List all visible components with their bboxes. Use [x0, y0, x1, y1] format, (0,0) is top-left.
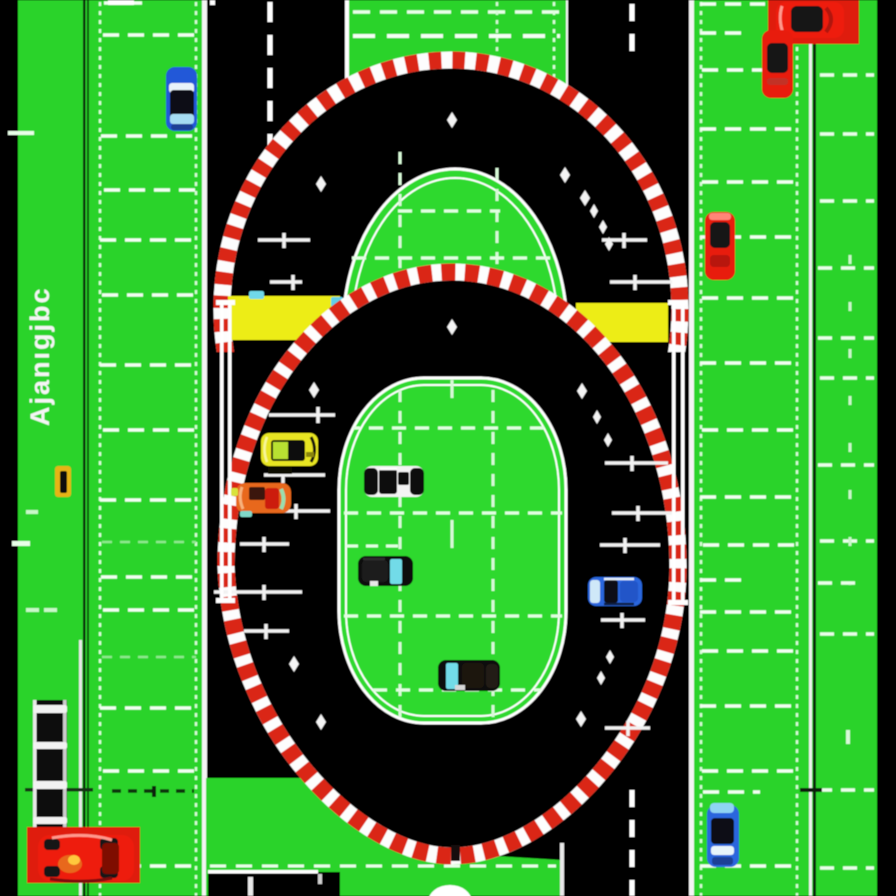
svg-text:Ajanıgjbc: Ajanıgjbc — [25, 286, 55, 426]
